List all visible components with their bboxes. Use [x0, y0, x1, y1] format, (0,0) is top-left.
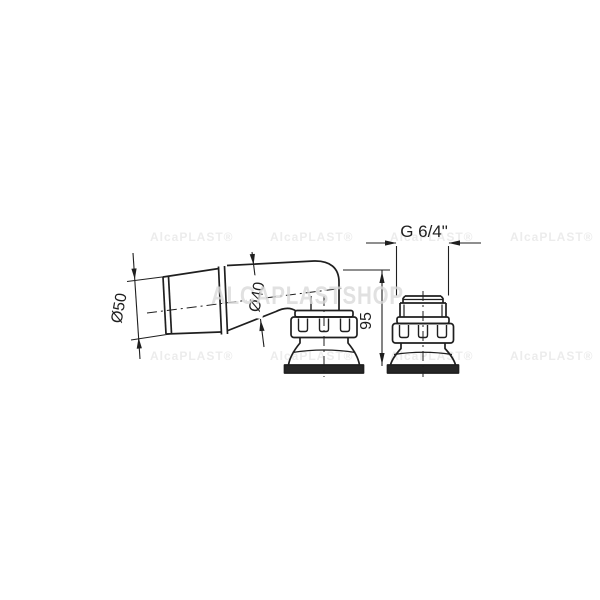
large-shop-watermark: ALCAPLASTSHOP [211, 282, 404, 311]
technical-drawing-canvas: AlcaPLAST® AlcaPLAST® AlcaPLAST® AlcaPLA… [0, 0, 600, 600]
dimension-label-d50: Ø50 [109, 292, 131, 325]
arrowhead [379, 353, 384, 365]
arrowhead [385, 240, 397, 245]
arrowhead [449, 240, 461, 245]
arrowhead [259, 320, 264, 331]
dimension-label-thread: G 6/4" [400, 222, 448, 241]
dimension-d50 [127, 253, 170, 359]
arrowhead [131, 268, 136, 279]
dimension-label-95: 95 [358, 312, 375, 330]
